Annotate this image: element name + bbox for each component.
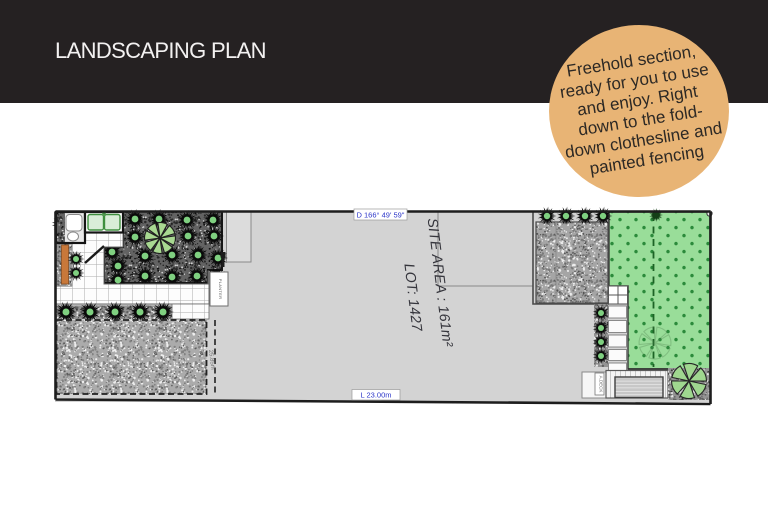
svg-text:A.DECK: A.DECK (599, 376, 604, 393)
svg-text:PLANTER: PLANTER (218, 279, 223, 300)
svg-text:L 23.00m: L 23.00m (361, 391, 392, 400)
svg-text:D 166° 49' 59": D 166° 49' 59" (357, 210, 405, 219)
